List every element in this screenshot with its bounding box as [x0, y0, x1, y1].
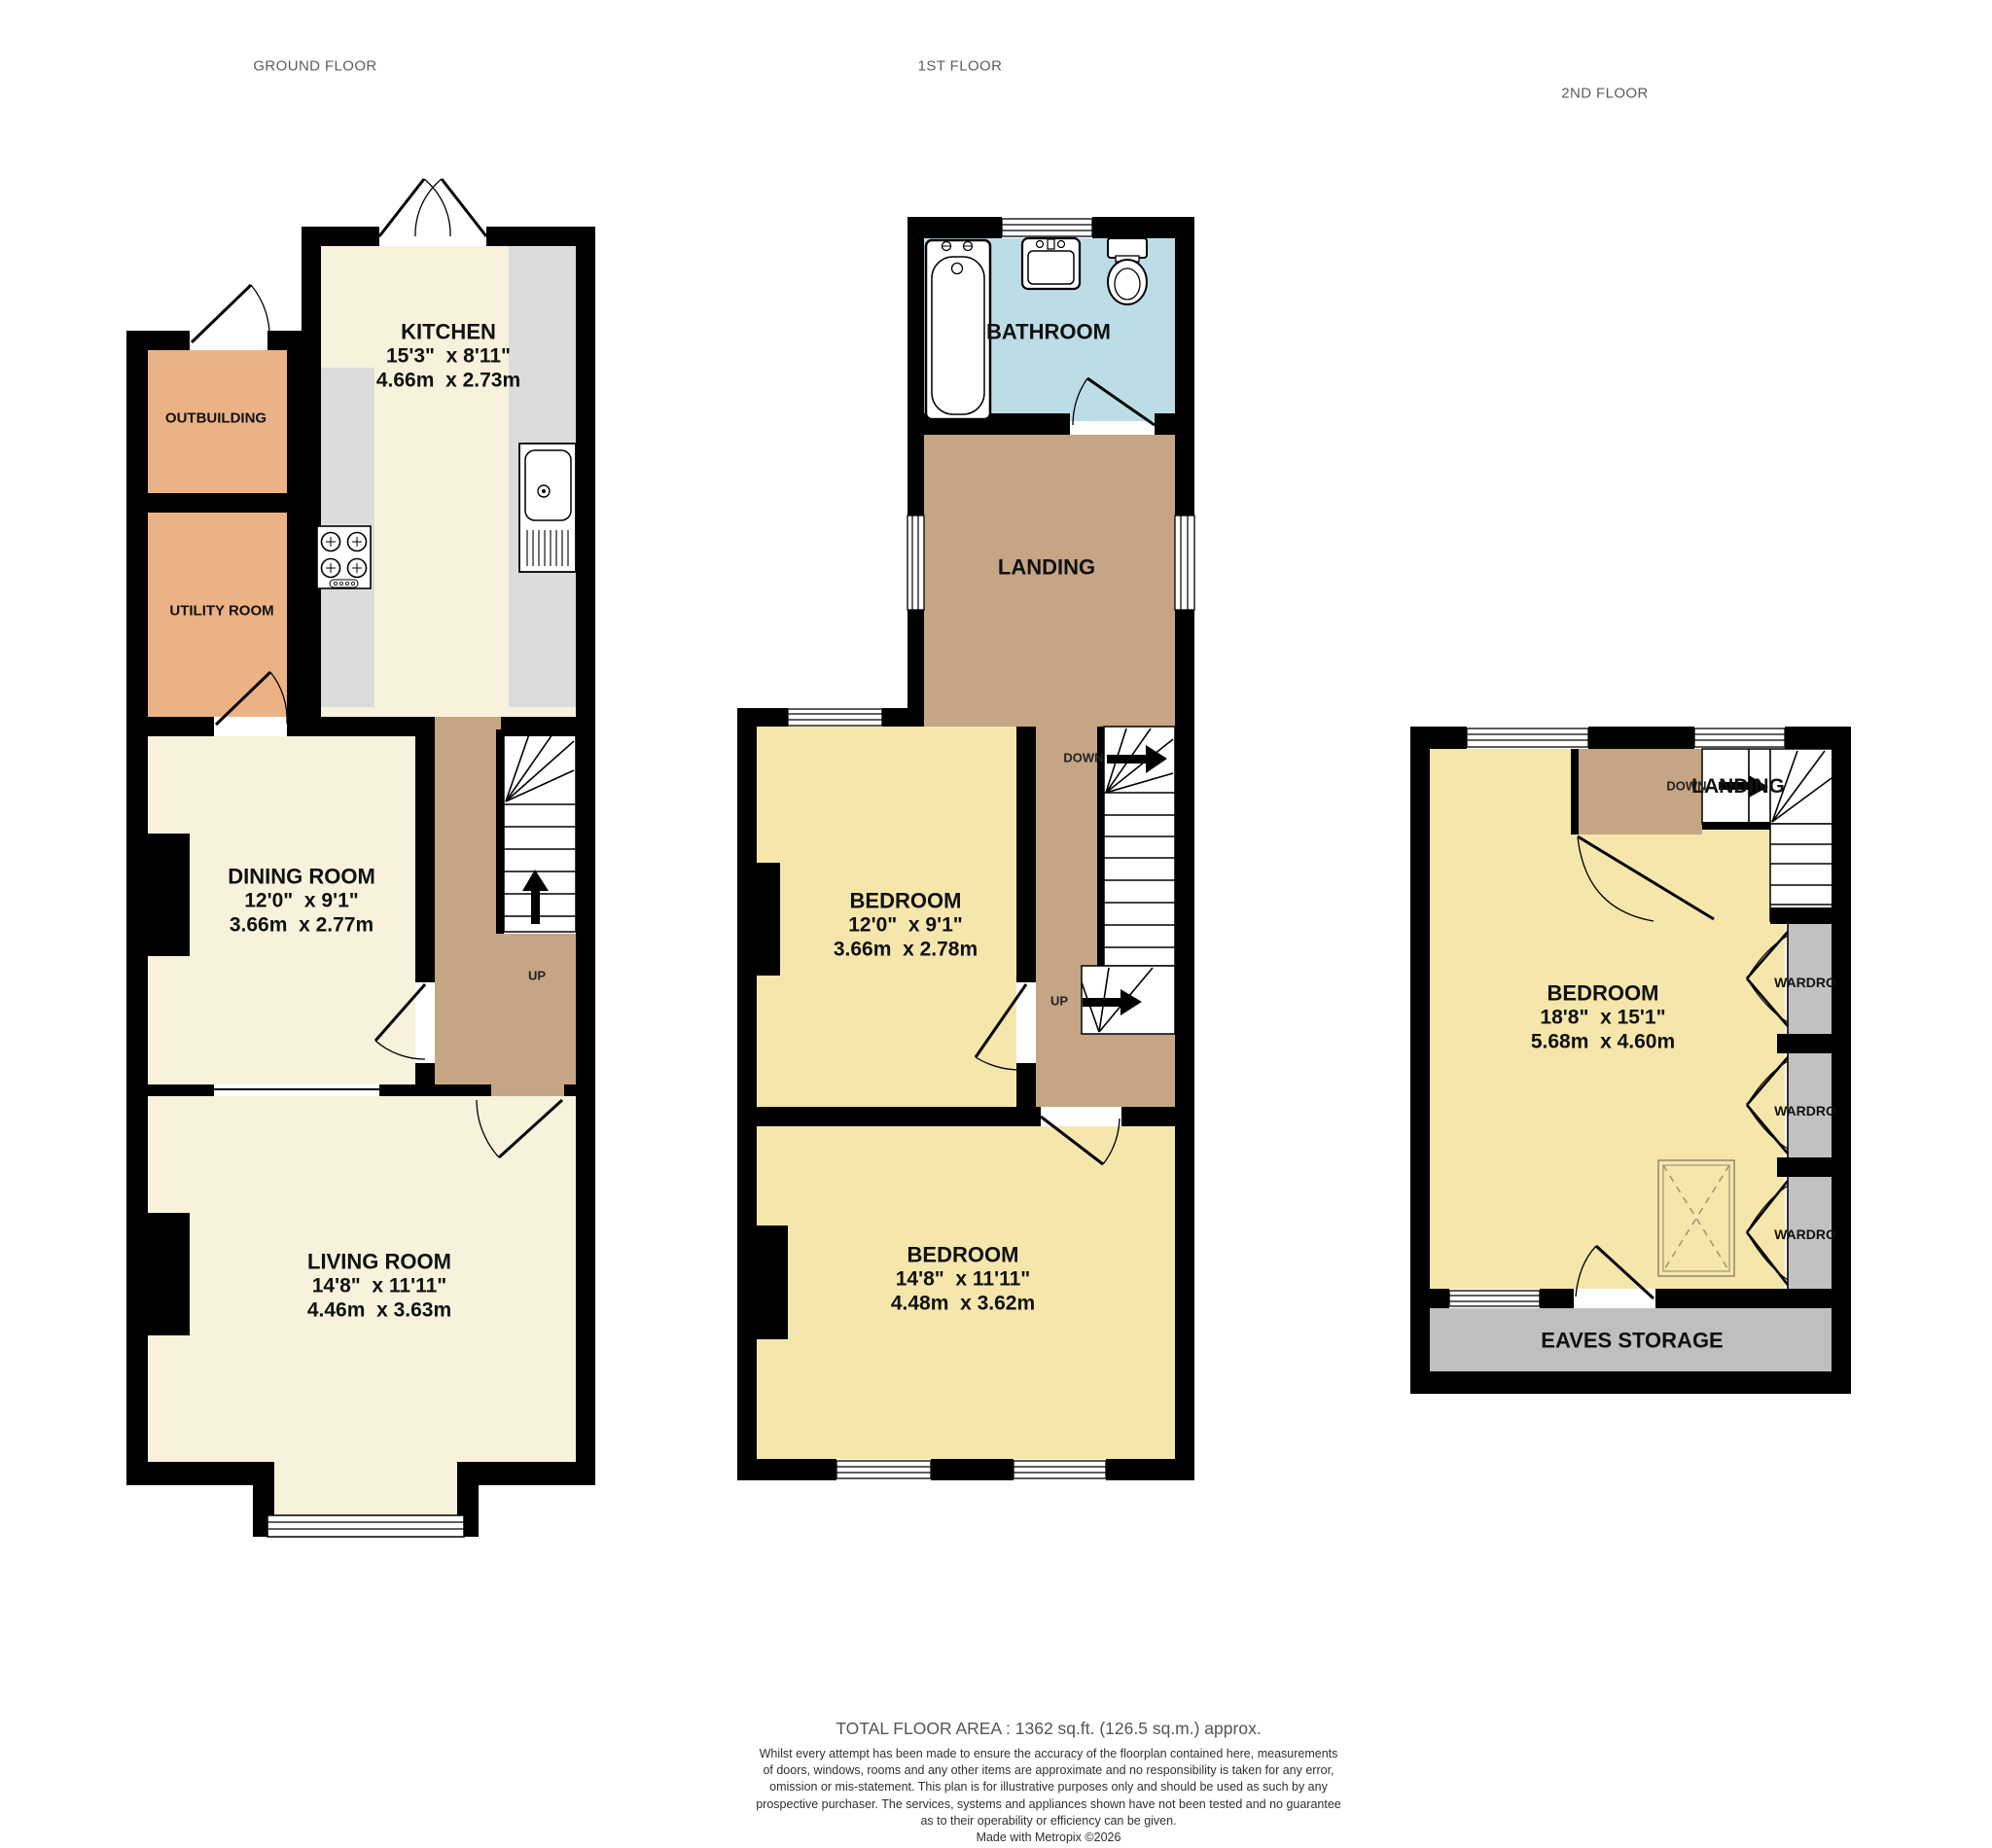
wardrobe-label: WARDRO	[1774, 1226, 1836, 1242]
bathtub-icon	[926, 240, 990, 419]
ground-stairs	[504, 729, 576, 932]
room-dim-metric: 4.46m x 3.63m	[307, 1298, 451, 1323]
room-label-bedroom2: BEDROOM 14'8" x 11'11" 4.48m x 3.62m	[891, 1243, 1035, 1316]
ground-windows	[267, 1515, 464, 1537]
bathroom-sink-icon	[1022, 238, 1080, 289]
disclaimer-line: Whilst every attempt has been made to en…	[514, 1746, 1583, 1762]
hallway-under-stairs	[501, 934, 576, 1096]
room-name: BEDROOM	[1531, 981, 1675, 1006]
room-label-landing2: LANDING	[1691, 775, 1785, 799]
ground-floor-plan	[126, 179, 595, 1537]
room-label-eaves: EAVES STORAGE	[1541, 1328, 1723, 1352]
room-label-bedroom3: BEDROOM 18'8" x 15'1" 5.68m x 4.60m	[1531, 981, 1675, 1054]
room-dim-metric: 5.68m x 4.60m	[1531, 1030, 1675, 1054]
disclaimer-line: as to their operability or efficiency ca…	[514, 1813, 1583, 1830]
open-archway-line	[214, 1088, 379, 1090]
wardrobe-label: WARDRO	[1774, 1103, 1836, 1119]
room-dim-metric: 4.66m x 2.73m	[376, 369, 520, 393]
floor-title-first: 1ST FLOOR	[918, 57, 1003, 74]
disclaimer-line: of doors, windows, rooms and any other i…	[514, 1762, 1583, 1779]
floor-title-ground: GROUND FLOOR	[253, 57, 376, 74]
room-label-dining: DINING ROOM 12'0" x 9'1" 3.66m x 2.77m	[228, 865, 375, 938]
room-name: BEDROOM	[891, 1243, 1035, 1267]
room-dim-metric: 3.66m x 2.78m	[834, 938, 978, 962]
kitchen-sink-icon	[519, 444, 576, 572]
chimney-breast	[737, 1226, 788, 1339]
room-label-outbuilding: OUTBUILDING	[165, 409, 267, 426]
chimney-breast	[126, 1213, 190, 1335]
room-dim-metric: 4.48m x 3.62m	[891, 1292, 1035, 1316]
room-label-bathroom: BATHROOM	[986, 319, 1111, 343]
room-label-landing: LANDING	[998, 554, 1095, 579]
stairs-down-label: DOWN	[1063, 752, 1103, 766]
bay-floor	[274, 1462, 459, 1517]
room-dim-imperial: 14'8" x 11'11"	[307, 1274, 451, 1298]
outbuilding-door	[192, 285, 269, 342]
chimney-breast	[126, 834, 190, 956]
credit-line: Made with Metropix ©2026	[514, 1830, 1583, 1846]
total-floor-area: TOTAL FLOOR AREA : 1362 sq.ft. (126.5 sq…	[836, 1719, 1261, 1738]
disclaimer: Whilst every attempt has been made to en…	[514, 1746, 1583, 1846]
room-dim-imperial: 18'8" x 15'1"	[1531, 1006, 1675, 1030]
bay-window	[267, 1515, 464, 1537]
room-dim-imperial: 14'8" x 11'11"	[891, 1267, 1035, 1292]
chimney-breast	[737, 863, 780, 976]
room-name: DINING ROOM	[228, 865, 375, 889]
second-floor-plan	[1410, 727, 1851, 1394]
room-label-kitchen: KITCHEN 15'3" x 8'11" 4.66m x 2.73m	[376, 320, 520, 393]
room-dim-imperial: 15'3" x 8'11"	[376, 344, 520, 369]
stairs-up-label: UP	[528, 970, 546, 984]
landing-room	[924, 435, 1175, 727]
toilet-icon	[1108, 238, 1147, 304]
room-label-living: LIVING ROOM 14'8" x 11'11" 4.46m x 3.63m	[307, 1250, 451, 1323]
room-dim-imperial: 12'0" x 9'1"	[228, 889, 375, 913]
room-label-utility: UTILITY ROOM	[169, 602, 273, 619]
floorplan-page: GROUND FLOOR 1ST FLOOR 2ND FLOOR KITCHEN…	[0, 0, 1992, 1848]
hallway	[435, 717, 501, 1096]
room-label-bedroom1: BEDROOM 12'0" x 9'1" 3.66m x 2.78m	[834, 889, 978, 962]
room-name: BEDROOM	[834, 889, 978, 913]
stairs-up-label: UP	[1050, 995, 1068, 1010]
kitchen-double-door	[379, 179, 486, 236]
room-name: LIVING ROOM	[307, 1250, 451, 1274]
room-name: KITCHEN	[376, 320, 520, 344]
disclaimer-line: omission or mis-statement. This plan is …	[514, 1779, 1583, 1795]
floor-title-second: 2ND FLOOR	[1561, 85, 1648, 101]
room-dim-imperial: 12'0" x 9'1"	[834, 913, 978, 938]
wardrobe-label: WARDRO	[1774, 975, 1836, 990]
disclaimer-line: prospective purchaser. The services, sys…	[514, 1796, 1583, 1813]
room-dim-metric: 3.66m x 2.77m	[228, 913, 375, 938]
hob-icon	[317, 526, 371, 588]
